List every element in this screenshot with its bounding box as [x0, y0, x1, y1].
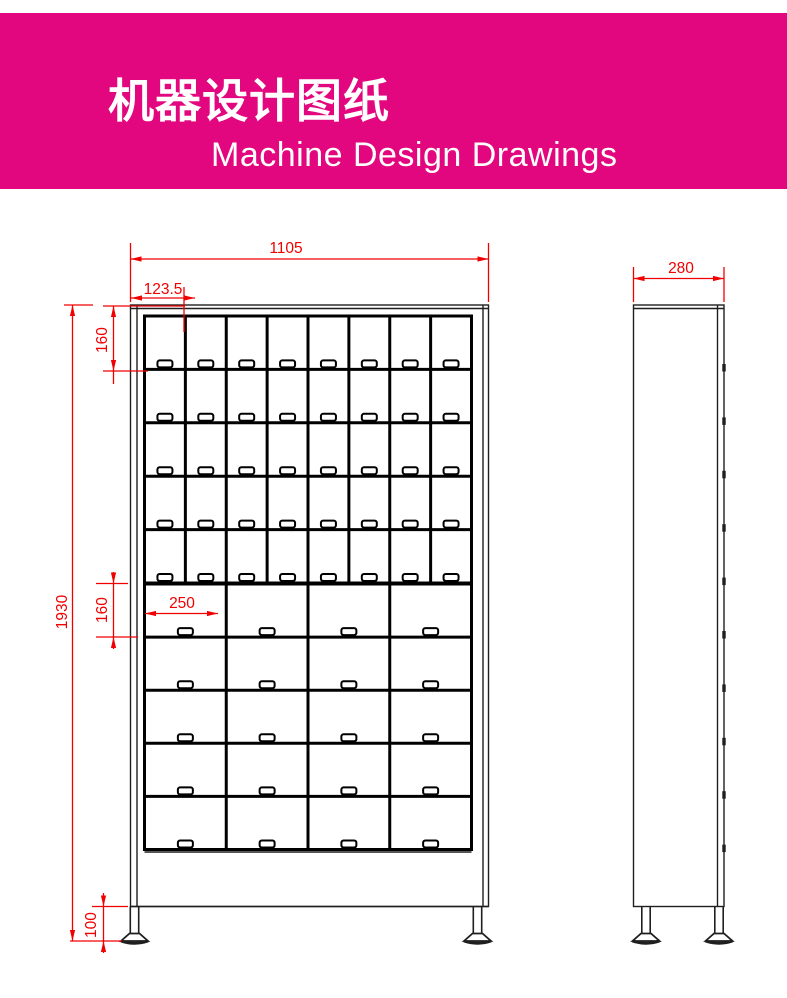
drawer-handle: [444, 360, 459, 367]
dimension-overall-height: 1930: [54, 305, 93, 941]
hinge-mark: [722, 524, 725, 532]
drawer-handle: [260, 734, 275, 741]
drawer-handle: [321, 414, 336, 421]
dimension-label-big-cell-width: 250: [169, 595, 195, 612]
drawer-handle: [198, 360, 213, 367]
dimension-label-depth: 280: [668, 260, 694, 277]
hinge-mark: [722, 631, 725, 639]
drawer-handle: [403, 521, 418, 528]
drawer-handle: [423, 734, 438, 741]
dimension-depth: 280: [634, 260, 725, 302]
drawer-handle: [178, 787, 193, 794]
drawer-handle: [280, 414, 295, 421]
dimension-big-row-height: 160: [94, 572, 138, 649]
drawer-handle: [198, 414, 213, 421]
drawer-handle: [280, 467, 295, 474]
drawer-handle: [444, 521, 459, 528]
leveling-foot: [464, 907, 491, 944]
drawer-handle: [341, 681, 356, 688]
drawer-handle: [362, 574, 377, 581]
drawer-handle: [403, 467, 418, 474]
drawer-handle: [423, 681, 438, 688]
drawer-handle: [321, 467, 336, 474]
drawer-handle: [280, 360, 295, 367]
drawer-handle: [178, 734, 193, 741]
drawer-handle: [444, 414, 459, 421]
dimension-foot-height: 100: [70, 893, 128, 953]
drawer-handle: [198, 574, 213, 581]
dimension-small-row-height: 160: [94, 306, 185, 384]
drawer-handle: [239, 521, 254, 528]
drawer-handle: [403, 360, 418, 367]
drawer-handle: [362, 414, 377, 421]
cell-grid: [145, 584, 472, 850]
drawer-handle: [444, 574, 459, 581]
drawer-handle: [178, 681, 193, 688]
drawer-handle: [260, 681, 275, 688]
hinge-mark: [722, 578, 725, 586]
drawer-handle: [403, 414, 418, 421]
drawer-handle: [423, 787, 438, 794]
leveling-foot: [706, 907, 733, 944]
drawer-handle: [362, 467, 377, 474]
drawer-handle: [198, 521, 213, 528]
dimension-label-top-cell-width: 123.5: [144, 281, 183, 298]
drawer-handle: [198, 467, 213, 474]
drawer-handle: [321, 574, 336, 581]
drawer-handle: [157, 360, 172, 367]
hinge-mark: [722, 471, 725, 479]
hinge-mark: [722, 791, 725, 799]
drawer-handle: [423, 628, 438, 635]
drawer-handle: [260, 841, 275, 848]
leveling-foot: [121, 907, 148, 944]
hinge-mark: [722, 738, 725, 746]
hinge-mark: [722, 364, 725, 372]
drawer-handle: [341, 628, 356, 635]
drawer-handle: [362, 521, 377, 528]
hinge-mark: [722, 417, 725, 425]
drawer-handle: [239, 467, 254, 474]
dimension-big-cell-width: 250: [145, 595, 218, 616]
drawer-handle: [341, 787, 356, 794]
drawer-handle: [178, 841, 193, 848]
drawer-handle: [341, 734, 356, 741]
drawer-handle: [444, 467, 459, 474]
dimension-label-foot-height: 100: [83, 912, 100, 938]
drawer-handle: [341, 841, 356, 848]
drawer-handle: [280, 574, 295, 581]
drawer-handle: [321, 360, 336, 367]
drawer-handle: [362, 360, 377, 367]
drawer-handle: [321, 521, 336, 528]
dimension-label-big-row-height: 160: [94, 597, 111, 623]
technical-drawing: 1105123.51601930250160100280: [0, 0, 787, 998]
hinge-mark: [722, 684, 725, 692]
drawer-handle: [178, 628, 193, 635]
drawer-handle: [157, 574, 172, 581]
drawer-handle: [239, 574, 254, 581]
drawer-handle: [260, 628, 275, 635]
drawer-handle: [239, 414, 254, 421]
drawer-handle: [280, 521, 295, 528]
drawer-handle: [260, 787, 275, 794]
dimension-label-overall-height: 1930: [54, 594, 71, 629]
dimension-label-small-row-height: 160: [94, 327, 111, 353]
drawer-handle: [157, 521, 172, 528]
drawer-handle: [157, 467, 172, 474]
hinge-mark: [722, 845, 725, 853]
drawer-handle: [403, 574, 418, 581]
page: 机器设计图纸 Machine Design Drawings 1105123.5…: [0, 0, 787, 998]
drawer-handle: [157, 414, 172, 421]
cell-grid: [145, 316, 472, 583]
dimension-label-overall-width: 1105: [269, 240, 302, 257]
drawer-handle: [423, 841, 438, 848]
side-view: [634, 305, 726, 907]
drawer-handle: [239, 360, 254, 367]
leveling-foot: [633, 907, 660, 944]
